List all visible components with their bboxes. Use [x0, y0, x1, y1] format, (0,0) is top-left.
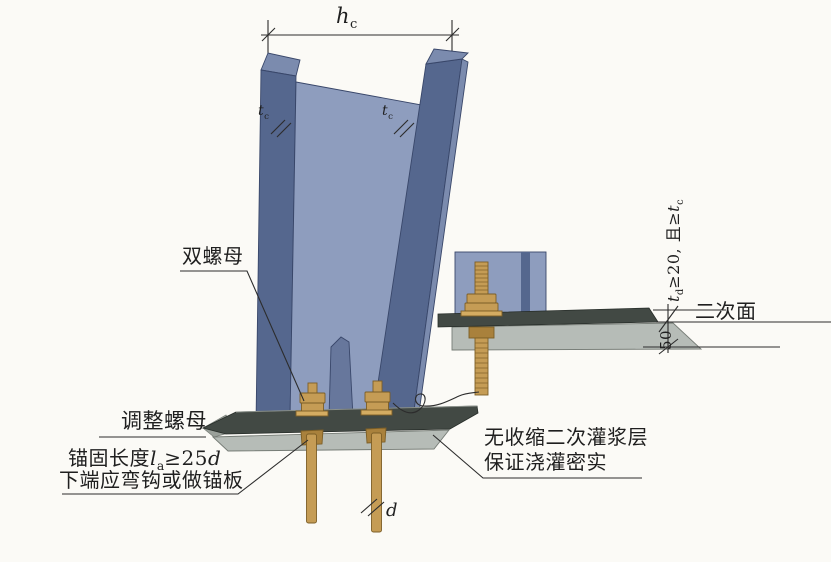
washer: [296, 411, 328, 416]
td-symbol: t: [664, 295, 683, 302]
dim-50-label: 50: [659, 330, 675, 350]
dim-td-note: td≥20, 且≥tc: [666, 199, 687, 302]
hc-symbol: h: [336, 4, 350, 28]
base-detail-inset: [438, 252, 831, 395]
hc-subscript: c: [350, 17, 357, 32]
detail-bolt-rod: [475, 338, 488, 395]
detail-washer: [461, 311, 502, 316]
tc-symbol: t: [664, 205, 683, 212]
dim-tc-right-label: tc: [382, 104, 393, 122]
label-double-nut: 双螺母: [182, 246, 244, 267]
detail-hex-nut-upper: [467, 294, 496, 303]
la-symbol: l: [150, 446, 157, 470]
anchor-rod: [372, 433, 382, 532]
bolt-stub: [308, 383, 317, 394]
td-relation: ≥20, 且≥: [664, 212, 683, 289]
label-adjust-nut: 调整螺母: [121, 410, 207, 432]
base-plate: [203, 406, 478, 434]
detail-column-web-edge: [521, 252, 530, 314]
diagram-canvas: hc tc tc 双螺母 调整螺母 锚固长度la≥25d 下端应弯钩或做锚板 无…: [0, 0, 831, 562]
dim-d-label: d: [386, 502, 398, 521]
anchor-length-text: 锚固长度: [68, 446, 150, 470]
hex-nut-upper: [300, 393, 325, 403]
detail-adjusting-nut: [469, 327, 494, 338]
label-grout-line1: 无收缩二次灌浆层: [484, 427, 648, 448]
td-subscript: d: [675, 289, 686, 295]
label-anchor-end-note: 下端应弯钩或做锚板: [59, 470, 244, 491]
dim-hc-label: hc: [336, 5, 357, 32]
grout-thickness-value: 50: [657, 330, 675, 350]
base-stiffener: [329, 337, 353, 417]
hc-dimension: [261, 20, 459, 62]
left-flange: [256, 70, 296, 424]
anchor-rod: [307, 434, 317, 523]
anchor-length-d: d: [208, 446, 221, 470]
label-grout-line2: 保证浇灌密实: [484, 452, 607, 473]
dim-tc-left-label: tc: [258, 104, 269, 122]
d-symbol: d: [386, 500, 398, 521]
label-secondary-surface: 二次面: [695, 301, 757, 322]
hex-nut-upper: [365, 392, 390, 402]
detail-hex-nut-lower: [465, 303, 498, 311]
bolt-stub: [373, 381, 382, 392]
tc-subscript: c: [675, 199, 686, 205]
anchor-length-relation: ≥25: [164, 446, 208, 470]
tc-subscript: c: [264, 112, 269, 122]
washer: [361, 410, 392, 415]
tc-subscript: c: [388, 112, 393, 122]
steel-column: [256, 49, 468, 424]
